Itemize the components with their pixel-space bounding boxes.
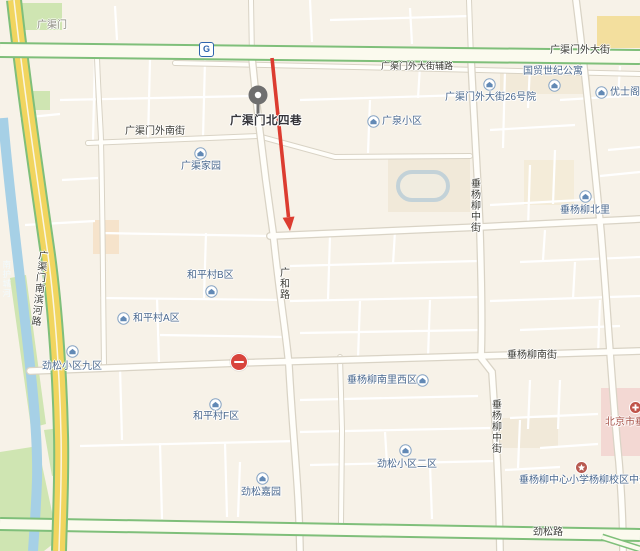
residential-icon[interactable]: [256, 472, 269, 485]
no-entry-icon: [230, 353, 248, 371]
residential-icon[interactable]: [416, 374, 429, 387]
residential-icon[interactable]: [194, 147, 207, 160]
subway-station-icon[interactable]: G: [199, 42, 214, 57]
guangqumen-street-shape: [0, 50, 640, 57]
residential-icon[interactable]: [579, 190, 592, 203]
residential-icon[interactable]: [483, 78, 496, 91]
residential-icon[interactable]: [205, 285, 218, 298]
residential-icon[interactable]: [367, 115, 380, 128]
running-track: [398, 172, 448, 200]
residential-icon[interactable]: [595, 86, 608, 99]
jinsong-road-shape: [0, 524, 640, 549]
residential-icon[interactable]: [209, 398, 222, 411]
school-icon[interactable]: [575, 461, 588, 474]
residential-icon[interactable]: [399, 444, 412, 457]
residential-icon[interactable]: [117, 312, 130, 325]
map-canvas[interactable]: 广渠门 广渠门外大街 广渠门外大街辅路 广渠门外南街 垂杨柳南街 劲松路 广和路…: [0, 0, 640, 551]
hospital-icon[interactable]: [629, 401, 640, 414]
location-pin[interactable]: [244, 84, 272, 116]
residential-icon[interactable]: [548, 79, 561, 92]
map-base-layer: [0, 0, 640, 551]
residential-icon[interactable]: [66, 345, 79, 358]
